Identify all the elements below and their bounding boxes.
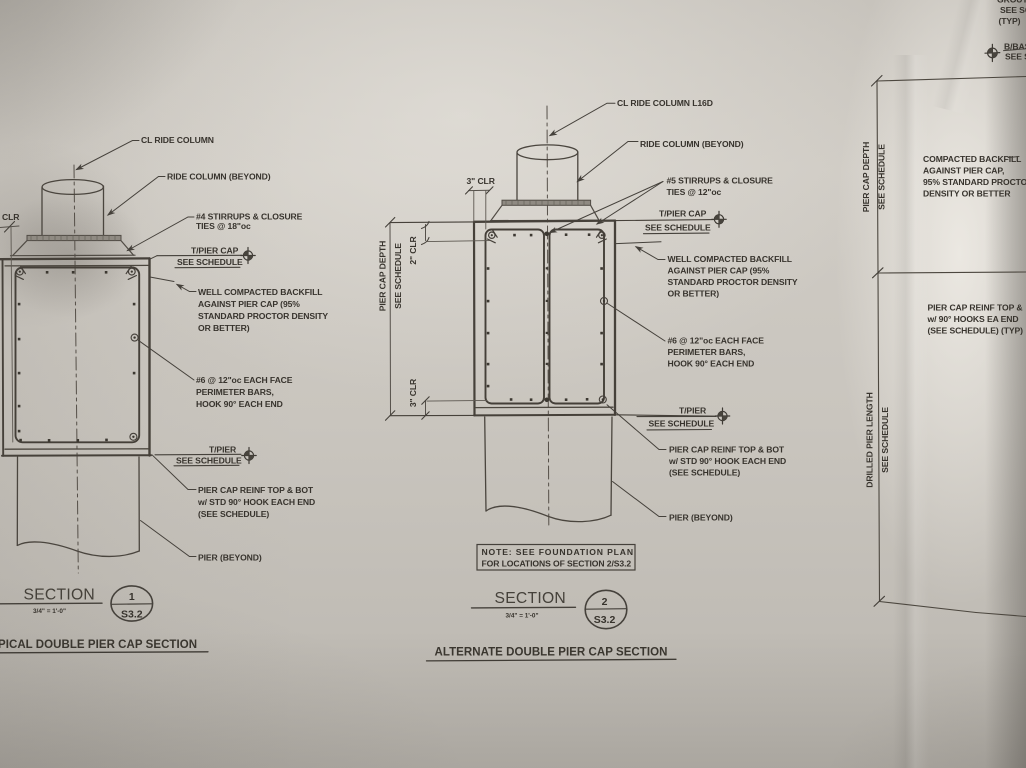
svg-text:STANDARD PROCTOR DENSITY: STANDARD PROCTOR DENSITY: [668, 277, 798, 287]
svg-text:PICAL DOUBLE PIER CAP SECTION: PICAL DOUBLE PIER CAP SECTION: [0, 639, 197, 651]
svg-text:TIES @ 12"oc: TIES @ 12"oc: [667, 187, 722, 197]
svg-text:PIER CAP REINF TOP & BOT: PIER CAP REINF TOP & BOT: [198, 485, 314, 495]
svg-text:2" CLR: 2" CLR: [408, 235, 418, 264]
svg-text:AGAINST PIER CAP (95%: AGAINST PIER CAP (95%: [668, 266, 770, 276]
svg-text:SEE SCHEDULE: SEE SCHEDULE: [649, 419, 715, 429]
svg-text:WELL COMPACTED BACKFILL: WELL COMPACTED BACKFILL: [668, 254, 792, 264]
svg-text:T/PIER: T/PIER: [209, 445, 237, 455]
svg-text:3/4" = 1'-0": 3/4" = 1'-0": [33, 608, 66, 615]
svg-text:RIDE COLUMN (BEYOND): RIDE COLUMN (BEYOND): [640, 139, 744, 149]
svg-text:SEE SCHEDULE: SEE SCHEDULE: [877, 144, 887, 210]
svg-text:STANDARD PROCTOR DENSITY: STANDARD PROCTOR DENSITY: [198, 311, 328, 321]
svg-text:TIES @ 18"oc: TIES @ 18"oc: [196, 221, 251, 231]
svg-text:(SEE SCHEDULE) (TYP): (SEE SCHEDULE) (TYP): [928, 326, 1024, 336]
svg-text:CLR: CLR: [2, 212, 20, 222]
svg-text:CL RIDE COLUMN L16D: CL RIDE COLUMN L16D: [617, 98, 713, 108]
svg-text:SEE SCHEDULE: SEE SCHEDULE: [177, 257, 243, 267]
svg-text:SEE SC: SEE SC: [1000, 5, 1026, 15]
svg-text:PIER CAP REINF TOP &: PIER CAP REINF TOP &: [928, 303, 1023, 313]
svg-text:PIER CAP DEPTH: PIER CAP DEPTH: [378, 241, 388, 312]
svg-text:PERIMETER BARS,: PERIMETER BARS,: [668, 347, 746, 357]
svg-text:AGAINST PIER CAP (95%: AGAINST PIER CAP (95%: [198, 299, 300, 309]
svg-text:PIER CAP REINF TOP & BOT: PIER CAP REINF TOP & BOT: [669, 445, 785, 455]
svg-text:SEE SCHEDULE: SEE SCHEDULE: [393, 243, 403, 309]
svg-text:#6 @ 12"oc EACH FACE: #6 @ 12"oc EACH FACE: [668, 336, 765, 346]
svg-text:OR BETTER): OR BETTER): [668, 289, 720, 299]
svg-text:FOR LOCATIONS OF SECTION 2/S3.: FOR LOCATIONS OF SECTION 2/S3.2: [482, 559, 632, 569]
svg-text:NOTE: SEE FOUNDATION PLAN: NOTE: SEE FOUNDATION PLAN: [482, 547, 634, 557]
svg-text:w/ 90° HOOKS EA END: w/ 90° HOOKS EA END: [927, 314, 1019, 324]
svg-text:HOOK 90° EACH END: HOOK 90° EACH END: [668, 359, 755, 369]
svg-text:S3.2: S3.2: [121, 609, 143, 621]
svg-text:95% STANDARD PROCTOR: 95% STANDARD PROCTOR: [923, 177, 1026, 187]
svg-text:PERIMETER BARS,: PERIMETER BARS,: [196, 387, 274, 397]
svg-text:3" CLR: 3" CLR: [408, 378, 418, 407]
svg-text:WELL COMPACTED BACKFILL: WELL COMPACTED BACKFILL: [198, 287, 322, 297]
svg-text:AGAINST PIER CAP,: AGAINST PIER CAP,: [923, 166, 1004, 176]
svg-text:DRILLED PIER LENGTH: DRILLED PIER LENGTH: [865, 392, 875, 488]
svg-text:COMPACTED BACKFILL: COMPACTED BACKFILL: [923, 154, 1021, 164]
svg-text:PIER (BEYOND): PIER (BEYOND): [198, 553, 262, 563]
svg-text:#5 STIRRUPS & CLOSURE: #5 STIRRUPS & CLOSURE: [667, 176, 774, 186]
svg-text:#4 STIRRUPS & CLOSURE: #4 STIRRUPS & CLOSURE: [196, 212, 303, 222]
svg-text:3/4" = 1'-0": 3/4" = 1'-0": [506, 613, 539, 620]
svg-text:SECTION: SECTION: [24, 587, 95, 604]
svg-text:#6 @ 12"oc EACH FACE: #6 @ 12"oc EACH FACE: [196, 375, 293, 385]
svg-text:ALTERNATE DOUBLE PIER CAP SECT: ALTERNATE DOUBLE PIER CAP SECTION: [435, 647, 668, 659]
svg-text:PIER CAP DEPTH: PIER CAP DEPTH: [861, 142, 871, 213]
svg-text:SECTION: SECTION: [495, 590, 566, 607]
svg-text:w/ STD 90° HOOK EACH END: w/ STD 90° HOOK EACH END: [197, 497, 315, 507]
svg-text:T/PIER CAP: T/PIER CAP: [191, 246, 239, 256]
svg-text:PIER (BEYOND): PIER (BEYOND): [669, 513, 733, 523]
svg-text:S3.2: S3.2: [594, 614, 616, 626]
svg-text:(SEE SCHEDULE): (SEE SCHEDULE): [669, 468, 740, 478]
svg-text:CL RIDE COLUMN: CL RIDE COLUMN: [141, 135, 214, 145]
svg-text:T/PIER: T/PIER: [679, 406, 707, 416]
svg-text:1: 1: [129, 591, 135, 603]
svg-text:w/ STD 90° HOOK EACH END: w/ STD 90° HOOK EACH END: [668, 456, 786, 466]
svg-text:(SEE SCHEDULE): (SEE SCHEDULE): [198, 509, 269, 519]
svg-text:OR BETTER): OR BETTER): [198, 323, 250, 333]
svg-text:SEE S: SEE S: [1005, 51, 1026, 61]
svg-text:(TYP): (TYP): [999, 16, 1021, 26]
svg-text:SEE SCHEDULE: SEE SCHEDULE: [880, 407, 890, 473]
svg-text:HOOK 90° EACH END: HOOK 90° EACH END: [196, 399, 283, 409]
svg-text:SEE SCHEDULE: SEE SCHEDULE: [176, 456, 242, 466]
svg-text:RIDE COLUMN (BEYOND): RIDE COLUMN (BEYOND): [167, 172, 271, 182]
svg-text:DENSITY OR BETTER: DENSITY OR BETTER: [923, 189, 1011, 199]
svg-text:3" CLR: 3" CLR: [467, 176, 496, 186]
svg-text:2: 2: [602, 596, 608, 608]
svg-text:GROUT: GROUT: [997, 0, 1026, 5]
svg-text:T/PIER CAP: T/PIER CAP: [659, 209, 707, 219]
svg-text:SEE SCHEDULE: SEE SCHEDULE: [645, 223, 711, 233]
